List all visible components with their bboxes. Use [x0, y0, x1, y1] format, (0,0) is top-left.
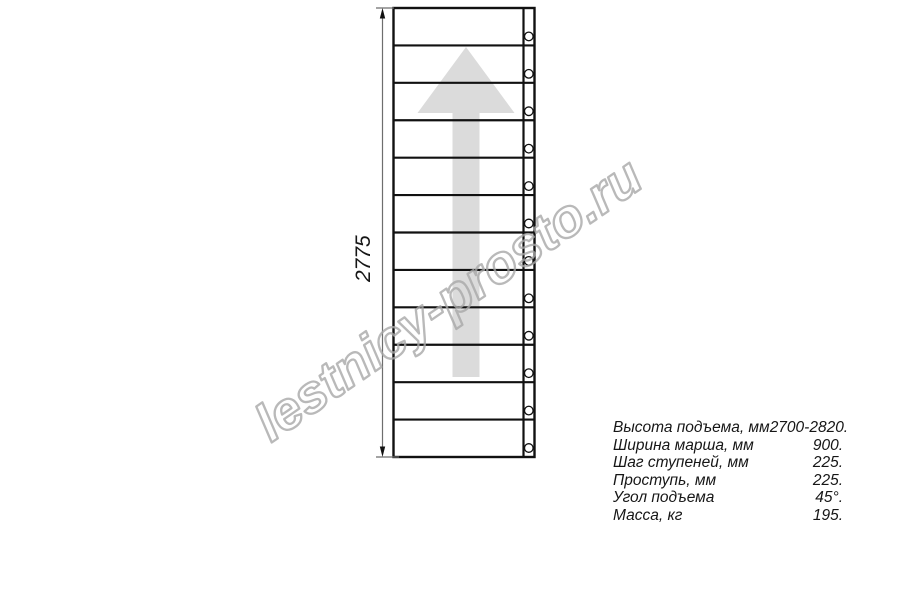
- fastener-circle-icon: [525, 70, 534, 79]
- fastener-circle-icon: [525, 182, 534, 191]
- watermark-text: lestnicy-prosto.ru: [244, 147, 652, 453]
- fastener-circle-icon: [525, 406, 534, 415]
- dimension-arrow-up-icon: [380, 8, 385, 19]
- spec-value: 225.: [813, 472, 843, 490]
- spec-value: 900.: [813, 437, 843, 455]
- fastener-circle-icon: [525, 369, 534, 378]
- dimension-label: 2775: [352, 235, 375, 283]
- spec-row: Шаг ступеней, мм225.: [613, 454, 843, 472]
- fastener-circle-icon: [525, 107, 534, 116]
- fastener-circle-icon: [525, 294, 534, 303]
- arrow-head: [418, 47, 515, 113]
- fastener-circle-icon: [525, 32, 534, 41]
- fastener-circle-icon: [525, 444, 534, 453]
- spec-label: Ширина марша, мм: [613, 437, 754, 455]
- dimension-arrow-down-icon: [380, 447, 385, 458]
- spec-row: Ширина марша, мм900.: [613, 437, 843, 455]
- spec-value: 2700-2820.: [770, 419, 848, 437]
- spec-row: Проступь, мм225.: [613, 472, 843, 490]
- spec-table: Высота подъема, мм2700-2820.Ширина марша…: [613, 419, 843, 524]
- spec-label: Шаг ступеней, мм: [613, 454, 749, 472]
- fastener-circle-icon: [525, 331, 534, 340]
- drawing-canvas: 2775 lestnicy-prosto.ru Высота подъема, …: [0, 0, 900, 600]
- spec-row: Угол подъема45°.: [613, 489, 843, 507]
- spec-label: Масса, кг: [613, 507, 682, 525]
- spec-label: Проступь, мм: [613, 472, 716, 490]
- spec-row: Высота подъема, мм2700-2820.: [613, 419, 843, 437]
- spec-label: Угол подъема: [613, 489, 714, 507]
- spec-label: Высота подъема, мм: [613, 419, 770, 437]
- fastener-circle-icon: [525, 144, 534, 153]
- spec-value: 45°.: [815, 489, 843, 507]
- spec-row: Масса, кг195.: [613, 507, 843, 525]
- spec-value: 225.: [813, 454, 843, 472]
- spec-value: 195.: [813, 507, 843, 525]
